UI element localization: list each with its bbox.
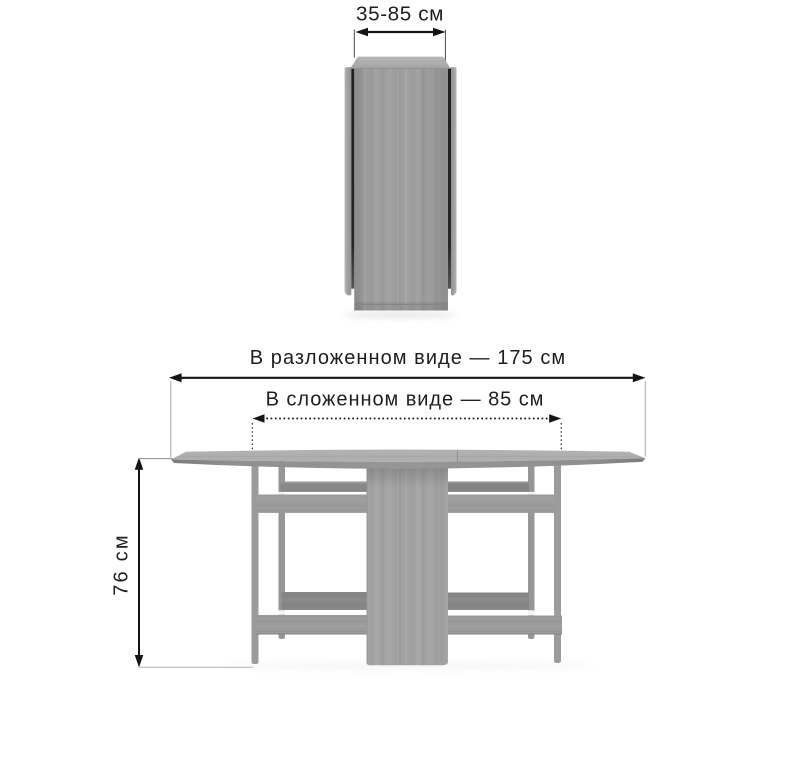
svg-text:35-85 см: 35-85 см bbox=[356, 3, 444, 26]
svg-text:76 см: 76 см bbox=[111, 533, 133, 596]
svg-text:В сложенном виде — 85 см: В сложенном виде — 85 см bbox=[266, 389, 545, 411]
svg-text:В разложенном виде — 175 см: В разложенном виде — 175 см bbox=[250, 347, 566, 369]
